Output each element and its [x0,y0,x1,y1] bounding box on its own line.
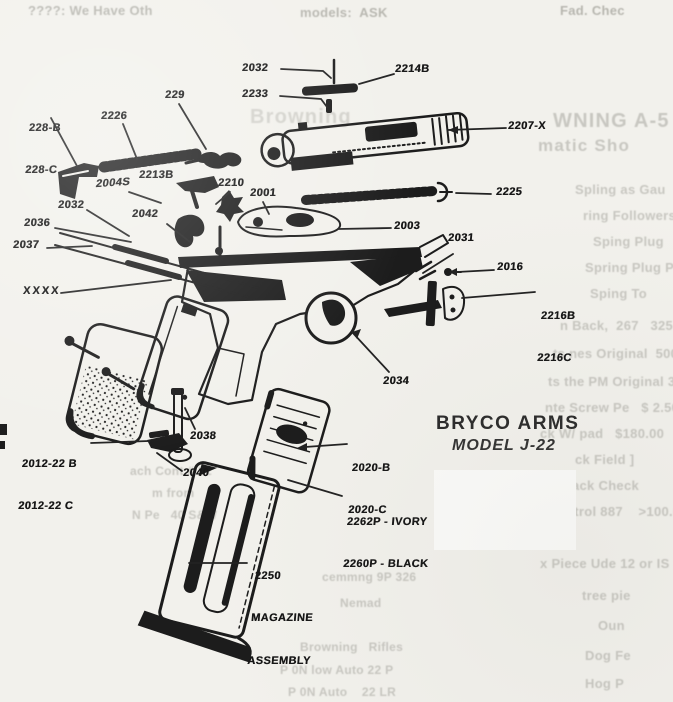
part-label-2032-top: 2032 [241,61,268,75]
part-label-line: MAGAZINE [250,611,315,625]
part-label-2032-left: 2032 [57,198,84,212]
part-label-2004s: 2004S [95,175,131,192]
part-label-2040: 2040 [182,466,209,480]
part-label-line: 2012-22 C [17,499,73,513]
part-label-2012: 2012-22 B 2012-22 C [15,428,80,542]
part-label-2213b: 2213B [138,168,174,182]
part-label-2214b: 2214B [394,62,430,76]
part-label-xxxx: XXXX [22,284,61,298]
part-label-2034: 2034 [382,374,409,388]
part-label-line: 2012-22 B [21,457,77,471]
recoil-spring-part [306,183,452,201]
slide-drawing [259,105,470,173]
firing-pin-parts [302,60,358,113]
part-label-line: 228-B [28,121,61,135]
part-label-line: 2262P - IVORY [346,515,432,529]
part-label-2036: 2036 [23,216,50,230]
scanned-catalog-page: ????: We Have Oth models: ASK Fad. Chec … [0,0,673,702]
part-label-2016: 2016 [496,260,523,274]
part-label-2225: 2225 [495,185,522,199]
part-label-line: 228-C [24,163,57,177]
slide-spring-part [104,154,196,167]
part-label-line: 2260P - BLACK [342,557,428,571]
part-label-2001: 2001 [249,186,276,200]
barrel-part [238,207,340,237]
part-label-2031: 2031 [447,231,474,245]
part-label-2233: 2233 [241,87,268,101]
part-label-229: 229 [164,88,185,102]
part-label-2042: 2042 [131,207,158,221]
whiteout-patch [434,470,576,550]
brand-title: BRYCO ARMS [436,413,579,435]
part-label-2207x: 2207-X [507,119,546,133]
part-label-line: 2250 [254,569,319,583]
part-label-2210: 2210 [217,176,244,190]
part-label-line: ASSEMBLY [247,654,312,668]
part-label-line: 2216B [540,309,576,323]
part-label-2037: 2037 [12,238,39,252]
part-label-2003: 2003 [393,219,420,233]
part-label-2226: 2226 [100,109,127,123]
part-label-2038: 2038 [189,429,216,443]
page-edge-marks [0,424,7,449]
part-label-grips-color: 2262P - IVORY 2260P - BLACK [340,486,435,600]
part-label-line: 2216C [536,351,572,365]
safety-catch-part [58,163,99,199]
model-title: MODEL J-22 [452,437,556,455]
grip-panel-bottom [246,387,332,494]
part-label-line: 2020-B [351,461,391,475]
